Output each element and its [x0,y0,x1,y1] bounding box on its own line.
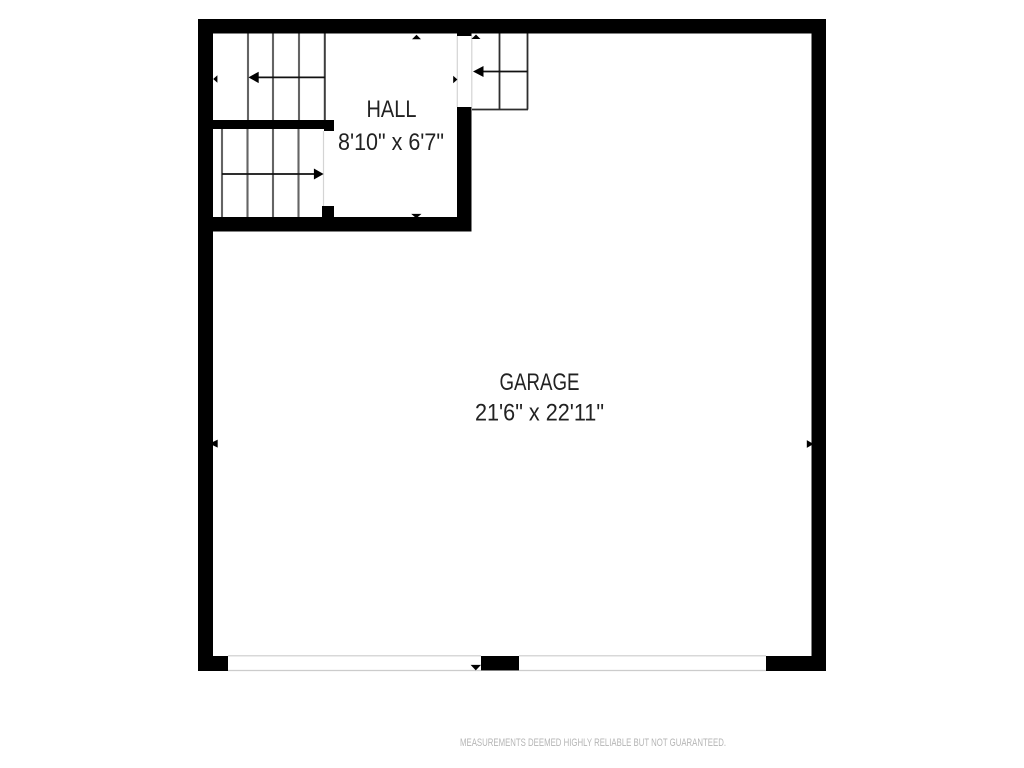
svg-text:MEASUREMENTS DEEMED HIGHLY REL: MEASUREMENTS DEEMED HIGHLY RELIABLE BUT … [460,737,726,749]
svg-text:HALL: HALL [367,96,417,123]
svg-text:GARAGE: GARAGE [500,369,580,396]
svg-text:21'6" x 22'11": 21'6" x 22'11" [475,400,604,427]
svg-text:8'10" x 6'7": 8'10" x 6'7" [338,129,444,156]
